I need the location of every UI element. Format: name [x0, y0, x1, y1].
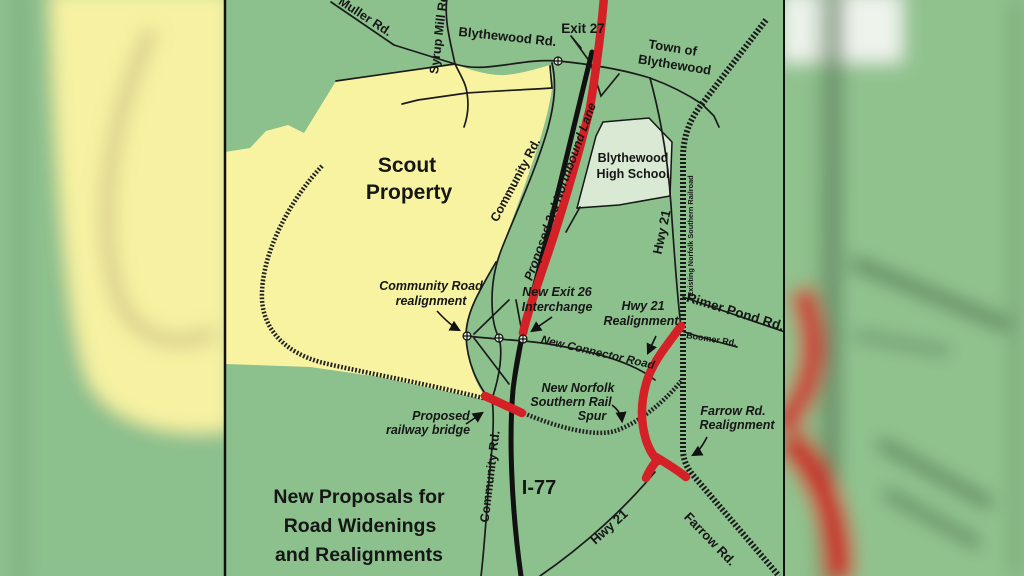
- rail-spur-label-line2: Southern Rail: [530, 395, 612, 409]
- rail-spur-label-line3: Spur: [578, 409, 608, 423]
- scout-property-label-line1: Scout: [378, 154, 436, 177]
- community-realign-label-line1: Community Road: [379, 279, 483, 293]
- blurred-right-background: [780, 0, 1024, 576]
- i77-label: I-77: [522, 477, 556, 499]
- railroad-label: Existing Norfolk Southern Railroad: [686, 175, 695, 296]
- exit27-label: Exit 27: [561, 21, 605, 36]
- road-proposals-map: Muller Rd. Syrup Mill Rd. Blythewood Rd.…: [0, 0, 1024, 576]
- node-icon: [554, 57, 562, 65]
- map-title-line1: New Proposals for: [273, 486, 445, 508]
- map-title-line2: Road Widenings: [284, 515, 437, 537]
- exit26-label-line1: New Exit 26: [522, 285, 593, 299]
- hwy21-realign-label-line2: Realignment: [603, 314, 679, 328]
- map-title-line3: and Realignments: [275, 544, 443, 566]
- exit26-label-line2: Interchange: [522, 300, 593, 314]
- node-icon: [519, 335, 527, 343]
- blurred-left-background: [0, 0, 235, 576]
- school-label-line1: Blythewood: [598, 151, 669, 165]
- node-icon: [463, 332, 471, 340]
- hwy21-realign-label-line1: Hwy 21: [621, 299, 664, 313]
- bridge-label-line2: railway bridge: [386, 423, 470, 437]
- node-icon: [495, 334, 503, 342]
- map-panel: Muller Rd. Syrup Mill Rd. Blythewood Rd.…: [224, 0, 788, 576]
- school-label-line2: High School: [597, 167, 670, 181]
- community-realign-label-line2: realignment: [396, 294, 468, 308]
- rail-spur-label-line1: New Norfolk: [542, 381, 616, 395]
- scout-property-label-line2: Property: [366, 181, 453, 204]
- farrow-realign-label-line1: Farrow Rd.: [700, 404, 765, 418]
- bridge-label-line1: Proposed: [412, 409, 470, 423]
- map-page: Muller Rd. Syrup Mill Rd. Blythewood Rd.…: [0, 0, 1024, 576]
- farrow-realign-label-line2: Realignment: [699, 418, 775, 432]
